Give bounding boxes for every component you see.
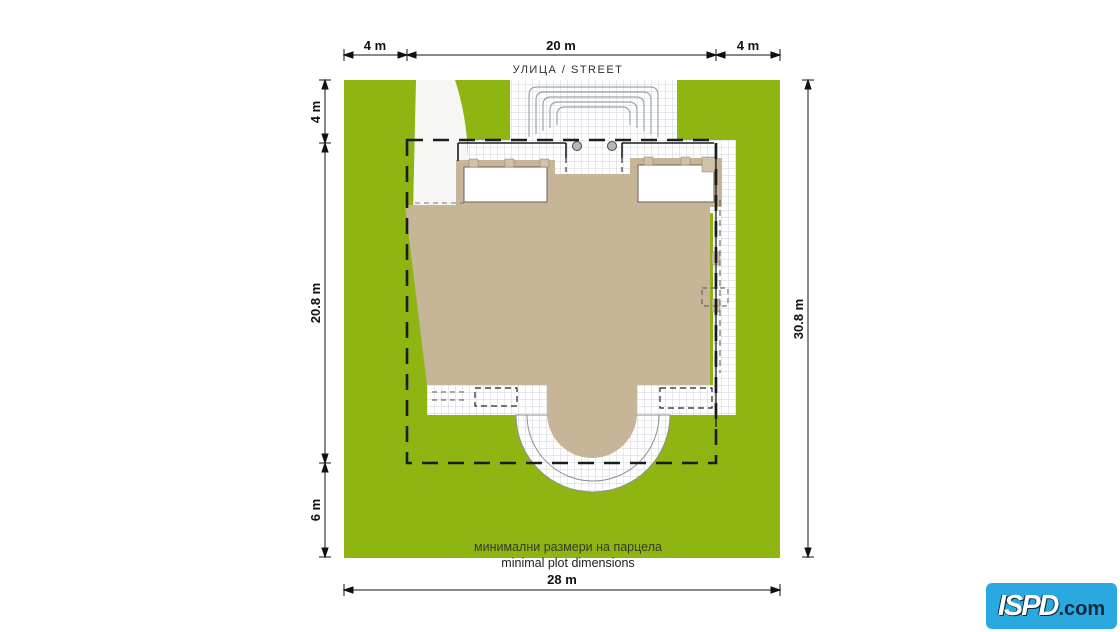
street-entry-paving bbox=[510, 80, 677, 140]
site-plan-page: 4 m 20 m 4 m 4 m 20.8 m 6 m 30.8 m bbox=[0, 0, 1120, 632]
dim-right-label: 30.8 m bbox=[791, 299, 806, 339]
plot-caption-bulgarian: минимални размери на парцела bbox=[474, 540, 662, 554]
dim-left-bottom-label: 6 m bbox=[308, 499, 323, 521]
dim-top-center-label: 20 m bbox=[546, 38, 576, 53]
entrance-column-icon bbox=[573, 142, 582, 151]
entrance-block bbox=[551, 174, 633, 207]
dimension-right: 30.8 m bbox=[791, 80, 814, 557]
ispd-logo-suffix: .com bbox=[1059, 599, 1106, 619]
ispd-logo-brand: ISPD bbox=[998, 592, 1058, 621]
dim-bottom-label: 28 m bbox=[547, 572, 577, 587]
dim-left-middle-label: 20.8 m bbox=[308, 283, 323, 323]
dimension-bottom: 28 m bbox=[344, 572, 780, 596]
dim-left-top-label: 4 m bbox=[308, 101, 323, 123]
left-wing-room bbox=[464, 167, 547, 202]
dimension-top: 4 m 20 m 4 m bbox=[344, 38, 780, 61]
dimension-left: 4 m 20.8 m 6 m bbox=[308, 80, 331, 557]
street-label: УЛИЦА / STREET bbox=[513, 64, 624, 76]
plot-caption-english: minimal plot dimensions bbox=[501, 556, 634, 570]
dim-top-right-label: 4 m bbox=[737, 38, 759, 53]
dim-top-left-label: 4 m bbox=[364, 38, 386, 53]
ispd-logo: ISPD .com bbox=[986, 583, 1117, 629]
site-plan-drawing: 4 m 20 m 4 m 4 m 20.8 m 6 m 30.8 m bbox=[0, 0, 1120, 632]
entrance-column-icon bbox=[608, 142, 617, 151]
